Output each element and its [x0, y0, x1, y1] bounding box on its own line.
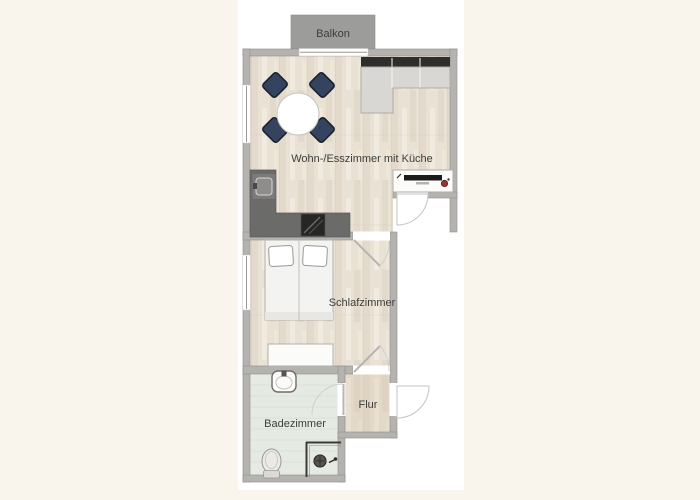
bedroom-window	[243, 255, 251, 310]
balcony-door	[299, 49, 368, 57]
sofa-backrest	[361, 57, 450, 67]
pillow	[268, 245, 293, 266]
balcony: Balkon	[291, 15, 375, 49]
living-room-window	[243, 85, 251, 143]
sideboard	[393, 170, 453, 192]
tv	[404, 175, 442, 181]
kitchen-sink	[253, 174, 276, 199]
dining-table	[277, 93, 319, 135]
decor-red-item	[441, 180, 447, 186]
dresser	[268, 344, 333, 366]
room-label-bathroom: Badezimmer	[264, 418, 326, 430]
room-label-hallway: Flur	[359, 399, 378, 411]
room-label-balcony: Balkon	[316, 28, 350, 40]
page-background: Balkon	[0, 0, 700, 500]
wall	[243, 366, 353, 374]
kitchen-stove	[301, 214, 325, 236]
room-label-bedroom: Schlafzimmer	[329, 297, 396, 309]
wall	[338, 366, 345, 383]
wall	[338, 416, 345, 482]
room-label-living: Wohn-/Esszimmer mit Küche	[291, 153, 433, 165]
faucet-icon	[253, 183, 257, 189]
wall	[450, 49, 457, 232]
pillow	[302, 245, 327, 266]
wall	[338, 432, 397, 438]
washbasin	[272, 371, 296, 393]
double-bed	[265, 240, 333, 320]
wall	[243, 475, 345, 482]
toilet	[262, 449, 281, 478]
floorplan: Balkon	[0, 0, 700, 500]
faucet-icon	[282, 371, 287, 377]
